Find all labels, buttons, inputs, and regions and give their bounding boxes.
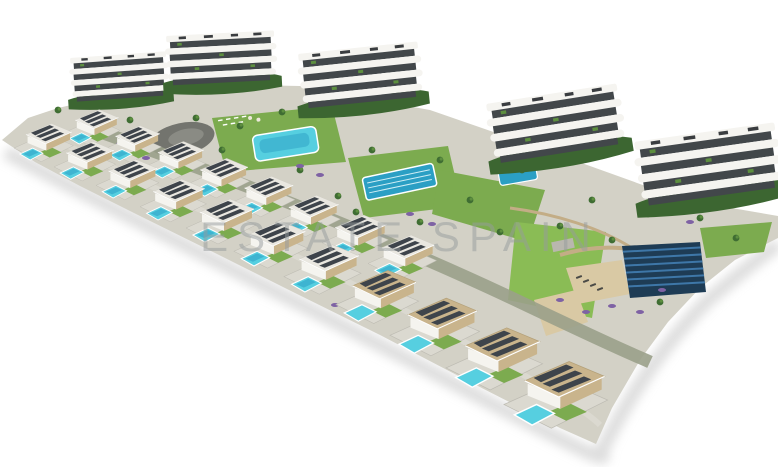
shrub — [658, 288, 666, 292]
shrub — [316, 173, 324, 177]
tree — [733, 235, 740, 242]
tree — [437, 157, 444, 164]
tree — [589, 197, 596, 204]
shrub — [582, 310, 590, 314]
tree — [369, 147, 376, 154]
apartment-block-2 — [161, 30, 283, 97]
tree — [219, 147, 226, 154]
tree — [609, 237, 616, 244]
apartment-block-5 — [627, 121, 778, 222]
apartment-block-4 — [479, 82, 634, 178]
tree — [193, 115, 200, 122]
tree — [697, 215, 704, 222]
shrub — [296, 164, 304, 168]
tree — [657, 299, 664, 306]
apartment-block-1 — [65, 51, 174, 112]
shrub — [608, 304, 616, 308]
site-plan-svg: ESTATE SPAIN — [0, 0, 778, 467]
tree — [279, 109, 286, 116]
tree — [467, 197, 474, 204]
shrub — [142, 156, 150, 160]
shrub — [686, 220, 694, 224]
tree — [127, 117, 134, 124]
tree — [237, 123, 244, 130]
property-render: ESTATE SPAIN — [0, 0, 778, 467]
shrub — [556, 298, 564, 302]
tree — [55, 107, 62, 114]
watermark-text: ESTATE SPAIN — [200, 213, 600, 260]
tree — [335, 193, 342, 200]
shrub — [636, 310, 644, 314]
